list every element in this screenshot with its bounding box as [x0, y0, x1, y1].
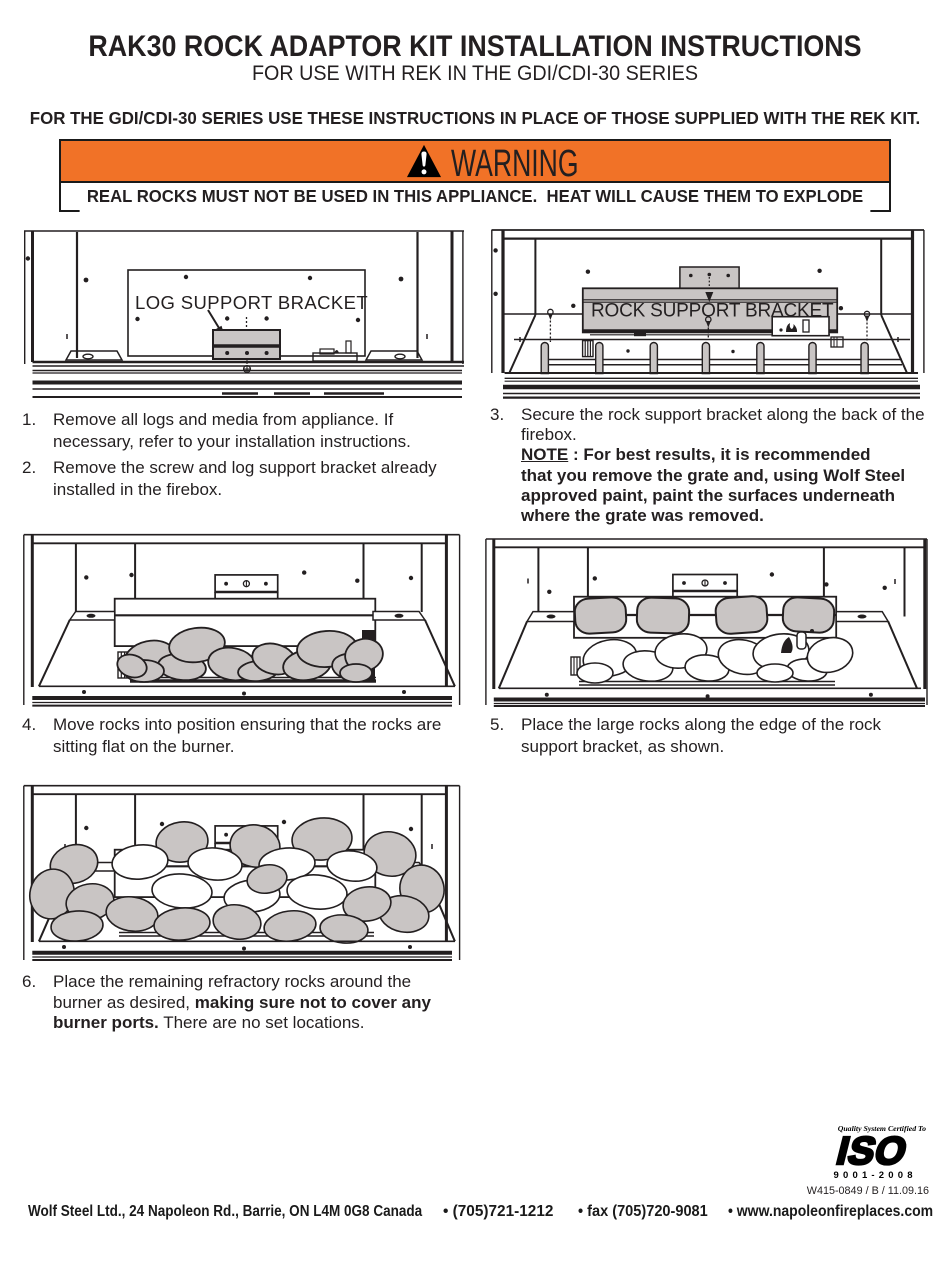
svg-text:9001-2008: 9001-2008: [834, 1170, 917, 1180]
svg-text:LOG SUPPORT BRACKET: LOG SUPPORT BRACKET: [135, 292, 368, 313]
svg-text:ISO: ISO: [832, 1130, 911, 1173]
